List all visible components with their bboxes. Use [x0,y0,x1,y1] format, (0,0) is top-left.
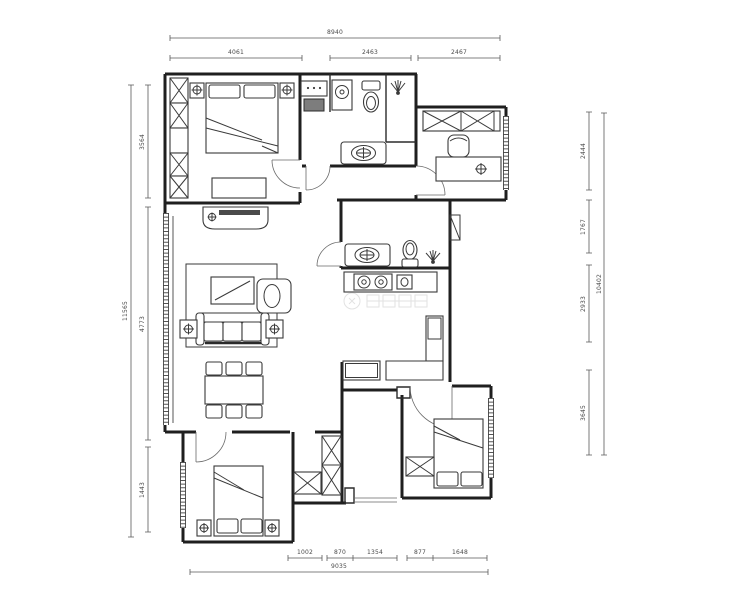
dim-label: 1648 [452,549,468,556]
room-bedroom-3 [406,419,483,488]
wardrobe [170,78,188,198]
desk [436,157,501,181]
wardrobe-tall [322,436,341,495]
bedroom2-window [181,462,186,528]
dim-label: 2467 [451,49,467,56]
dresser [212,178,266,198]
wardrobe [406,457,434,476]
dim-label: 1002 [297,549,313,556]
dim-label: 1354 [367,549,383,556]
gas-stove [354,274,392,290]
chair [246,362,262,375]
dim-label: 2444 [580,143,587,159]
dim-label: 1767 [580,219,587,235]
hall-closet [294,436,341,495]
room-study [423,111,501,181]
chair [206,362,222,375]
room-living [180,207,291,347]
dim-label: 1443 [139,482,146,498]
dim-label: 4061 [228,49,244,56]
washing-machine [332,80,352,110]
dining-table [205,376,263,404]
dim-label-bottom-overall: 9035 [331,563,347,570]
dim-label: 877 [414,549,426,556]
dim-label: 870 [334,549,346,556]
dining-area [205,362,263,418]
dim-label: 3564 [139,134,146,150]
nightstand [197,520,211,536]
room-bedroom-2 [197,466,279,536]
dim-label: 2463 [362,49,378,56]
nightstand [190,83,204,98]
room-kitchen [343,215,460,380]
chair [226,362,242,375]
floor-plan-drawing: 8940 4061 2463 2467 11565 3564 4773 1443… [0,0,740,600]
sofa [196,313,269,345]
nightstand [265,520,279,536]
toilet [402,241,418,268]
double-bed [434,419,483,488]
bookshelf [423,111,500,131]
side-table [266,320,283,338]
bedroom3-window [489,398,494,478]
dim-label: 2933 [580,296,587,312]
lower-counter [386,361,443,380]
side-table [180,320,197,338]
room-master-bedroom [170,78,294,198]
dim-label-left-overall: 11565 [122,301,129,321]
coffee-table [211,277,254,304]
chair [226,405,242,418]
shower-head-icon [426,250,440,263]
nightstand [280,83,294,98]
vanity-sink [341,142,386,164]
watermark [344,293,427,309]
double-bed [206,83,278,153]
dimension-left: 11565 3564 4773 1443 [122,85,151,537]
living-room-window [164,213,174,425]
vanity-sink [345,244,390,266]
double-bed [214,466,263,536]
dim-label-right-overall: 10402 [596,274,603,294]
chair [206,405,222,418]
wardrobe [294,472,321,494]
toilet [362,81,380,112]
floor-plan-page: 8940 4061 2463 2467 11565 3564 4773 1443… [0,0,740,600]
dimension-bottom: 1002 870 1354 877 1648 9035 [190,549,488,575]
room-bathroom-2 [341,241,450,269]
armchair [257,279,291,313]
tv [219,210,260,215]
kitchen-sink [397,275,412,289]
shower-head-icon [391,80,405,94]
dimension-top: 8940 4061 2463 2467 [170,29,500,61]
study-window [504,116,509,190]
dim-label: 4773 [139,316,146,332]
cabinet [301,81,327,96]
desk-chair [448,135,469,157]
tv-console [203,207,268,229]
chair [246,405,262,418]
dim-label-top-overall: 8940 [327,29,343,36]
dim-label: 3645 [580,405,587,421]
laundry-nook [301,80,352,111]
dimension-right: 10402 2444 1767 2933 3645 [580,112,607,455]
fridge [343,361,380,380]
shoe-cabinet [304,99,324,111]
